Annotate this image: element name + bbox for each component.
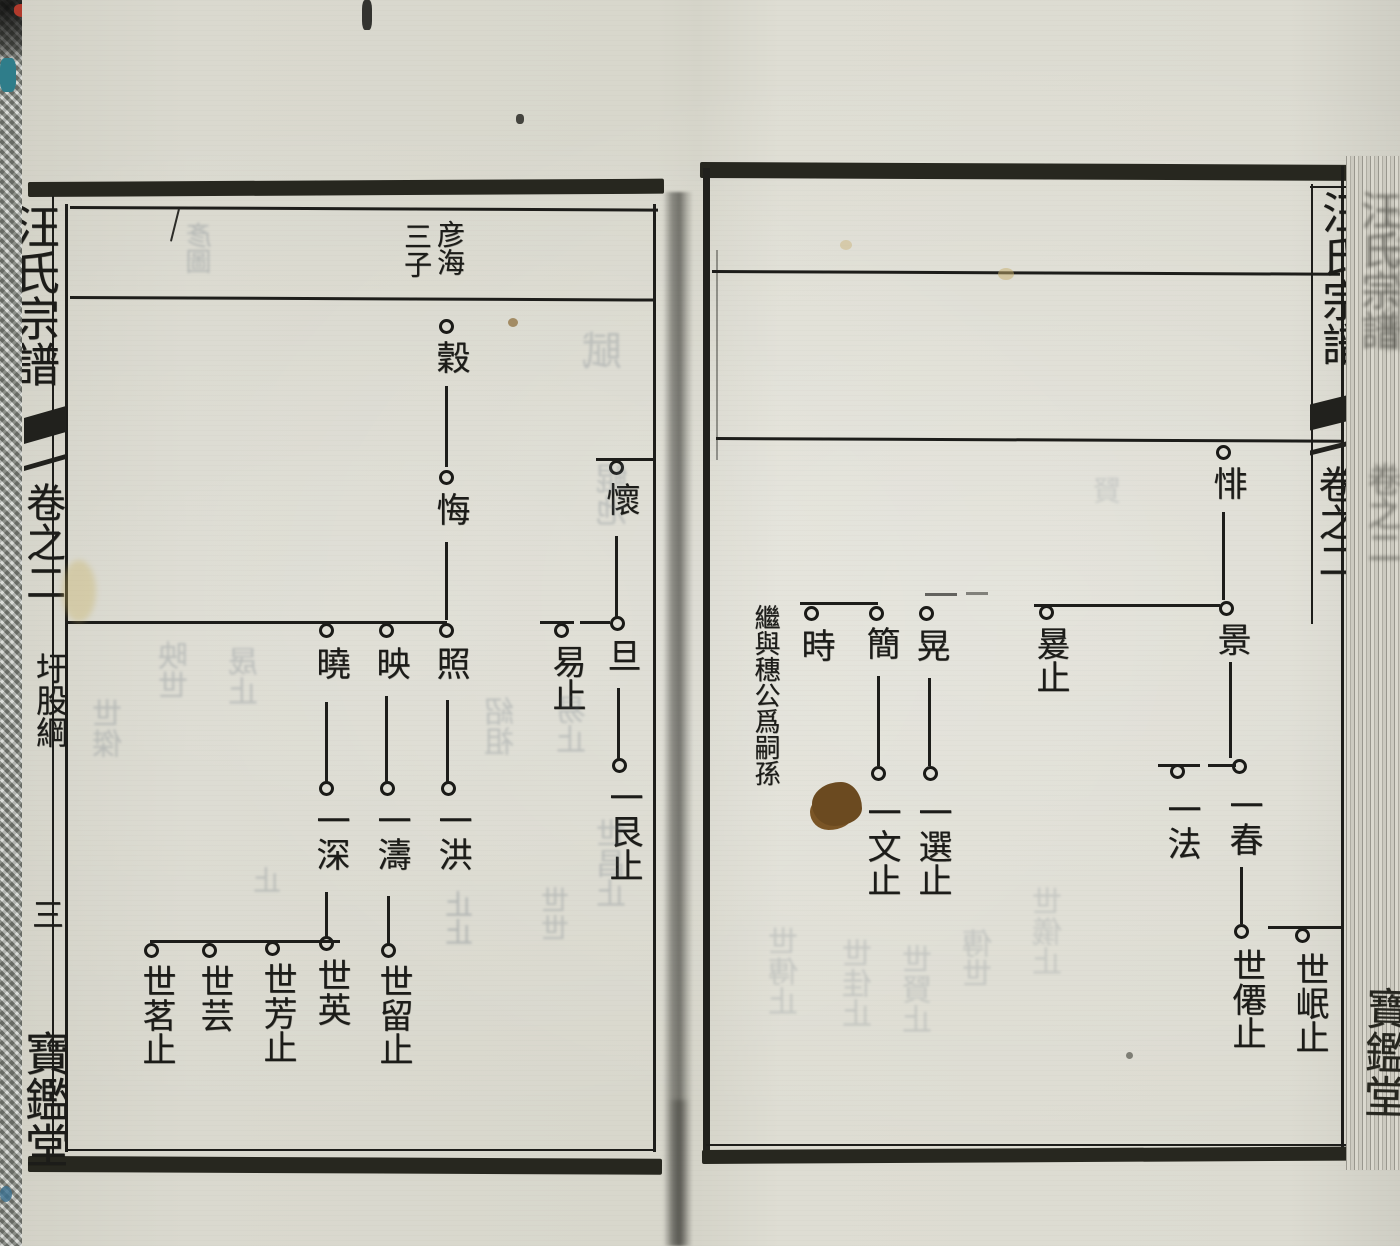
- fore-edge-ghost-title: 汪氏宗譜: [1376, 208, 1400, 352]
- bleedthrough-ghost: 世賢止: [904, 944, 938, 1034]
- bleedthrough-ghost: 世昌止: [598, 818, 632, 908]
- node-circle-yi-shen: [319, 781, 334, 796]
- person-label-shi: 時: [795, 628, 833, 662]
- gutter-fold-smear: [663, 192, 693, 1246]
- person-label-yi-hong: 一洪: [432, 803, 470, 871]
- person-label-gu: 穀: [430, 340, 468, 374]
- ink-speck: [1126, 1052, 1133, 1059]
- fishtail-ornament-line: [1310, 442, 1346, 456]
- bleedthrough-ghost: 世儀止: [1034, 886, 1068, 976]
- line-jian-wen: [877, 676, 880, 766]
- bleedthrough-ghost: 易止: [558, 694, 592, 754]
- line-ying-tao: [385, 696, 388, 782]
- bleedthrough-ghost: 彥圖: [186, 222, 216, 274]
- person-label-fei: 悱: [1207, 466, 1245, 500]
- person-label-dan: 旦: [601, 638, 639, 672]
- right-page-bottom-rule: [706, 1144, 1346, 1146]
- person-label-shi-ying: 世英: [310, 958, 350, 1026]
- bleedthrough-ghost: 世傑: [94, 698, 128, 758]
- node-circle-shi-liu: [381, 943, 396, 958]
- blue-thread-mark: [0, 1186, 12, 1202]
- left-margin-section: 圩股綱: [26, 652, 66, 748]
- brown-stain: [812, 782, 862, 826]
- small-stain: [508, 318, 518, 327]
- person-label-shi-fang: 世芳止: [256, 962, 296, 1064]
- node-circle-shi-xian: [1234, 924, 1249, 939]
- node-circle-jing: [1219, 601, 1234, 616]
- ink-mark-top: [362, 0, 372, 30]
- bleedthrough-ghost: 紹祖: [486, 696, 520, 756]
- ink-speck: [516, 114, 524, 124]
- left-margin-book-title: 汪氏宗譜: [22, 203, 58, 387]
- person-label-yi-chun: 一春: [1223, 788, 1261, 856]
- person-label-shi-min: 世岷止: [1288, 952, 1328, 1054]
- person-label-shi-xian: 世僊止: [1226, 948, 1265, 1050]
- line-huang-xuan: [928, 678, 931, 766]
- person-label-shi-liu: 世留止: [372, 964, 412, 1066]
- node-circle-gu: [439, 319, 454, 334]
- fishtail-ornament-line: [24, 454, 66, 471]
- paper-fleck: [840, 240, 852, 250]
- bleedthrough-ghost: 止止: [446, 890, 478, 946]
- left-margin-strip: 汪氏宗譜 卷之二 圩股綱 三 寶鑑堂: [22, 0, 66, 1246]
- node-circle-huang: [919, 606, 934, 621]
- person-label-jian: 簡: [860, 626, 898, 660]
- person-label-hui: 悔: [430, 492, 468, 526]
- bleedthrough-ghost: 世傳止: [770, 926, 804, 1016]
- person-label-yi-wen: 一文止: [861, 795, 899, 897]
- right-page-inner-rule: [716, 250, 718, 460]
- node-circle-jian: [869, 606, 884, 621]
- node-circle-yi-xuan: [923, 766, 938, 781]
- bleedthrough-ghost: 賢: [1094, 476, 1126, 504]
- bar-yi-dash2: [580, 621, 610, 624]
- bleedthrough-ghost: 傳世: [964, 928, 998, 988]
- left-margin-hall-name: 寶鑑堂: [22, 1030, 66, 1168]
- person-label-yi-shen: 一深: [310, 803, 348, 871]
- node-circle-yi: [554, 623, 569, 638]
- node-circle-shi-ming: [144, 943, 159, 958]
- sibling-bar-shi-generation: [150, 940, 340, 943]
- person-label-yi-xuan: 一選止: [912, 795, 950, 897]
- line-jing-chun: [1229, 662, 1232, 758]
- node-circle-shi-min: [1295, 928, 1310, 943]
- bar-shimin-to-border: [1268, 926, 1343, 929]
- line-fei-jing: [1222, 512, 1225, 600]
- sibling-bar-chun-fa-dash2: [1208, 764, 1236, 767]
- bleedthrough-ghost: 鯤池: [596, 462, 632, 526]
- line-gu-hui: [445, 386, 448, 467]
- line-huai-dan: [615, 536, 618, 617]
- person-label-yi-fa: 一法: [1161, 792, 1199, 860]
- line-chun-shixian: [1240, 867, 1243, 924]
- left-page-bottom-border: [28, 1156, 662, 1175]
- right-title-box-top: [1310, 186, 1346, 188]
- node-circle-dan: [610, 616, 625, 631]
- person-label-jing: 景: [1211, 622, 1249, 656]
- fore-edge-ghost-volume: 卷之二: [1360, 462, 1400, 564]
- left-margin-volume: 卷之二: [22, 482, 64, 602]
- node-circle-hui: [439, 470, 454, 485]
- person-label-huan: 㬊止: [1030, 626, 1068, 694]
- bar-huai-to-border: [596, 458, 654, 461]
- node-circle-ying: [379, 623, 394, 638]
- paper-fleck: [998, 268, 1014, 280]
- bleedthrough-ghost: 賦: [584, 330, 628, 370]
- right-margin-volume: 卷之二: [1312, 465, 1346, 579]
- annotation-adoption-note: 繼與穗公爲嗣孫: [750, 604, 781, 786]
- left-page-bottom-rule: [66, 1149, 656, 1151]
- bar-huang-dash1: [925, 593, 957, 596]
- node-circle-huan: [1039, 605, 1054, 620]
- person-label-zhao: 照: [430, 646, 468, 680]
- right-page-left-border: [703, 168, 710, 1154]
- person-label-yi-tao: 一濤: [371, 803, 409, 871]
- node-circle-shi-ying: [319, 936, 334, 951]
- node-circle-shi-yun: [202, 943, 217, 958]
- bleedthrough-ghost: 世佳止: [844, 938, 878, 1028]
- right-page-top-border: [700, 162, 1350, 181]
- sibling-bar-shi-jian: [800, 602, 878, 605]
- node-circle-shi-fang: [265, 941, 280, 956]
- bleedthrough-ghost: 晟止: [230, 646, 264, 706]
- fishtail-ornament: [1310, 396, 1346, 431]
- yellow-smudge: [62, 560, 96, 622]
- person-label-ying: 映: [370, 646, 408, 680]
- bleedthrough-ghost: 映世: [160, 640, 194, 700]
- node-circle-yi-tao: [380, 781, 395, 796]
- left-page-right-border: [653, 204, 656, 1152]
- person-label-shi-yun: 世芸: [193, 964, 233, 1032]
- line-dan-gen: [617, 688, 620, 759]
- gutter-fold-smear-lower: [668, 1100, 690, 1246]
- node-circle-yi-hong: [441, 781, 456, 796]
- right-margin-book-title: 汪氏宗譜: [1314, 190, 1346, 366]
- teal-thread-mark: [0, 58, 16, 92]
- header-label-father: 彦海: [433, 220, 463, 276]
- node-circle-shi: [804, 606, 819, 621]
- fishtail-ornament: [24, 406, 66, 444]
- bleedthrough-ghost: 止: [254, 866, 286, 894]
- node-circle-fei: [1216, 445, 1231, 460]
- person-label-huang: 晃: [910, 628, 948, 662]
- line-xiao-shen: [325, 702, 328, 782]
- sibling-bar-chun-fa-dash1: [1158, 764, 1200, 767]
- bar-yi-dash1: [540, 621, 574, 624]
- node-circle-xiao: [319, 623, 334, 638]
- line-zhao-hong: [446, 700, 449, 782]
- bleedthrough-ghost: 世世: [542, 886, 574, 942]
- left-margin-page-number: 三: [28, 898, 64, 930]
- person-label-xiao: 曉: [310, 646, 348, 680]
- sibling-bar-zhao-generation: [66, 621, 447, 624]
- line-hui-zhao: [445, 542, 448, 620]
- genealogy-book-photo: 汪氏宗譜 卷之二 圩股綱 三 寶鑑堂 彦海 三子: [0, 0, 1400, 1246]
- header-label-son-rank: 三子: [400, 222, 430, 278]
- bar-huang-dash2: [966, 592, 988, 595]
- book-fore-edge: 汪氏宗譜 汪氏宗譜 卷之二 寶鑑堂: [1346, 156, 1400, 1170]
- sibling-bar-jing-huan: [1034, 604, 1220, 607]
- node-circle-yi-gen: [612, 758, 627, 773]
- fore-edge-hall-name: 寶鑑堂: [1356, 985, 1400, 1118]
- line-shen-shiying: [325, 892, 328, 937]
- node-circle-zhao: [439, 623, 454, 638]
- line-tao-shiliu: [387, 896, 390, 944]
- person-label-shi-ming: 世茗止: [135, 964, 175, 1066]
- node-circle-yi-wen: [871, 766, 886, 781]
